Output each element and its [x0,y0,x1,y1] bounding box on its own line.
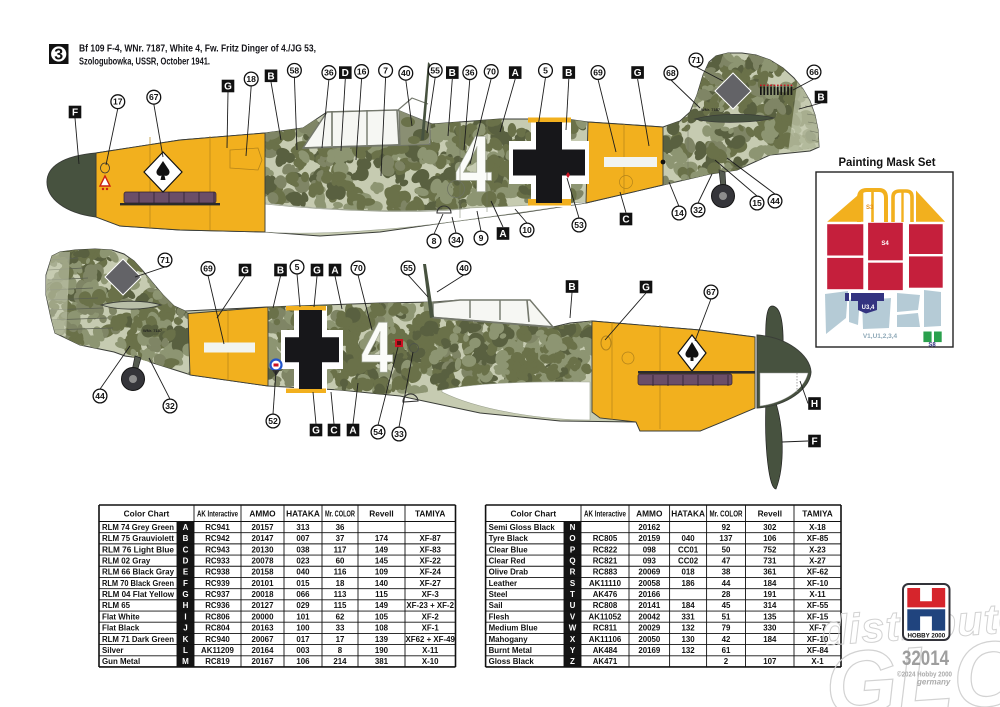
svg-text:3: 3 [54,47,63,64]
svg-text:54: 54 [373,427,383,437]
svg-text:40: 40 [459,263,469,273]
svg-text:RC938: RC938 [205,568,230,577]
svg-text:7: 7 [383,65,388,75]
svg-text:098: 098 [643,545,657,554]
svg-text:Gloss Black: Gloss Black [489,657,535,666]
svg-text:038: 038 [296,545,310,554]
svg-text:32014: 32014 [902,647,949,670]
svg-text:X: X [570,635,576,644]
svg-text:58: 58 [290,65,300,75]
svg-text:55: 55 [403,263,413,273]
svg-text:A: A [512,68,519,79]
svg-text:RLM 70 Black Green: RLM 70 Black Green [102,579,174,588]
svg-text:Steel: Steel [489,590,508,599]
svg-text:G: G [224,82,232,93]
svg-text:20141: 20141 [638,601,661,610]
svg-text:2: 2 [724,657,729,666]
svg-text:20147: 20147 [252,534,275,543]
svg-text:302: 302 [763,523,777,532]
svg-text:G: G [312,426,320,437]
svg-text:F: F [183,579,188,588]
svg-text:AMMO: AMMO [249,508,276,518]
svg-text:AK11110: AK11110 [589,579,622,588]
svg-text:B: B [565,68,572,79]
svg-text:F: F [72,108,78,119]
svg-text:20164: 20164 [252,646,275,655]
svg-text:17: 17 [336,635,345,644]
svg-text:M: M [182,657,189,666]
svg-text:106: 106 [763,534,777,543]
svg-text:R: R [570,568,576,577]
svg-text:V1,U1,2,3,4: V1,U1,2,3,4 [863,333,898,340]
svg-text:106: 106 [296,657,310,666]
svg-text:Tyre Black: Tyre Black [489,534,529,543]
svg-text:D: D [342,68,349,79]
svg-text:20078: 20078 [252,557,275,566]
svg-text:XF-10: XF-10 [807,579,829,588]
svg-text:14: 14 [674,208,684,218]
svg-text:113: 113 [334,590,347,599]
svg-text:X-18: X-18 [809,523,826,532]
svg-text:132: 132 [682,624,696,633]
svg-text:20042: 20042 [638,612,661,621]
svg-text:8: 8 [338,646,343,655]
svg-text:B: B [817,93,824,104]
svg-text:5: 5 [295,262,300,272]
svg-text:RC943: RC943 [205,545,230,554]
svg-text:X-10: X-10 [422,657,439,666]
svg-text:S8: S8 [928,343,936,349]
svg-text:RC942: RC942 [205,534,230,543]
svg-text:HATAKA: HATAKA [286,508,320,518]
svg-text:XF62 + XF-49: XF62 + XF-49 [406,635,456,644]
svg-text:AK11052: AK11052 [589,612,623,621]
svg-text:20157: 20157 [252,523,275,532]
svg-text:L: L [183,646,188,655]
svg-text:RC819: RC819 [205,657,230,666]
svg-text:K: K [183,635,189,644]
svg-text:A: A [499,229,506,240]
svg-text:69: 69 [203,264,213,274]
svg-text:Mr. COLOR: Mr. COLOR [325,508,355,518]
svg-text:AK471: AK471 [593,657,618,666]
svg-text:330: 330 [763,624,777,633]
svg-text:B: B [568,282,575,293]
svg-text:15: 15 [752,198,762,208]
svg-text:AK476: AK476 [593,590,618,599]
svg-text:214: 214 [333,657,347,666]
svg-text:XF-83: XF-83 [419,545,441,554]
svg-text:37: 37 [336,534,345,543]
svg-text:66: 66 [809,67,819,77]
svg-text:381: 381 [375,657,389,666]
svg-text:20127: 20127 [252,601,275,610]
svg-text:Bf 109 F-4, WNr. 7187, White 4: Bf 109 F-4, WNr. 7187, White 4, Fw. Frit… [79,44,316,55]
svg-text:O: O [569,534,575,543]
svg-text:F: F [811,437,817,448]
svg-text:115: 115 [334,601,347,610]
svg-text:093: 093 [643,557,657,566]
svg-text:003: 003 [296,646,310,655]
svg-text:44: 44 [722,579,731,588]
svg-text:RLM 66 Black Gray: RLM 66 Black Gray [102,568,175,577]
svg-text:314: 314 [763,601,777,610]
svg-text:53: 53 [574,220,584,230]
svg-text:10: 10 [522,225,532,235]
svg-text:52: 52 [268,416,278,426]
svg-text:XF-3: XF-3 [422,590,440,599]
svg-text:RC937: RC937 [205,590,230,599]
svg-text:TAMIYA: TAMIYA [802,508,832,518]
svg-text:RC804: RC804 [205,624,230,633]
svg-text:Medium Blue: Medium Blue [489,624,539,633]
svg-text:Revell: Revell [758,508,782,518]
svg-text:184: 184 [763,635,777,644]
svg-text:RC821: RC821 [593,557,618,566]
svg-text:36: 36 [336,523,345,532]
svg-text:67: 67 [149,92,159,102]
svg-text:135: 135 [763,612,777,621]
svg-text:B: B [183,534,189,543]
svg-text:XF-22: XF-22 [419,557,441,566]
svg-text:S3: S3 [866,205,874,211]
svg-text:20159: 20159 [638,534,661,543]
svg-text:Sail: Sail [489,601,503,610]
svg-text:HATAKA: HATAKA [671,508,705,518]
svg-text:RC940: RC940 [205,635,230,644]
svg-text:117: 117 [334,545,347,554]
svg-text:N: N [570,523,576,532]
svg-text:45: 45 [722,601,731,610]
svg-text:I: I [184,612,186,621]
svg-text:38: 38 [722,568,731,577]
svg-text:190: 190 [375,646,389,655]
svg-text:140: 140 [375,579,389,588]
svg-text:Color Chart: Color Chart [510,508,556,518]
svg-text:RLM 71 Dark Green: RLM 71 Dark Green [102,635,174,644]
svg-text:Olive Drab: Olive Drab [489,568,529,577]
svg-text:RC806: RC806 [205,612,230,621]
svg-text:RC811: RC811 [593,624,618,633]
svg-text:174: 174 [375,534,389,543]
svg-text:18: 18 [246,74,256,84]
svg-text:AK11106: AK11106 [589,635,622,644]
svg-text:RC933: RC933 [205,557,230,566]
svg-text:X-1: X-1 [811,657,824,666]
svg-text:U: U [570,601,576,610]
svg-text:4: 4 [361,307,393,388]
svg-text:20000: 20000 [252,612,275,621]
svg-text:186: 186 [682,579,696,588]
svg-text:20069: 20069 [638,568,661,577]
svg-text:Gun Metal: Gun Metal [102,657,140,666]
svg-text:145: 145 [375,557,389,566]
svg-text:WNr. 7187: WNr. 7187 [143,328,163,333]
svg-text:184: 184 [682,601,696,610]
svg-text:G: G [634,68,642,79]
svg-text:20050: 20050 [638,635,661,644]
svg-text:18: 18 [336,579,345,588]
svg-text:XF-62: XF-62 [807,568,829,577]
svg-text:B: B [277,266,284,277]
svg-text:130: 130 [682,635,696,644]
svg-text:XF-2: XF-2 [422,612,440,621]
svg-text:Flat White: Flat White [102,612,140,621]
svg-text:C: C [330,426,337,437]
svg-text:68: 68 [666,68,676,78]
svg-text:115: 115 [375,590,388,599]
svg-text:Mr. COLOR: Mr. COLOR [710,508,743,518]
svg-text:017: 017 [296,635,310,644]
svg-text:331: 331 [682,612,696,621]
svg-text:137: 137 [719,534,733,543]
svg-text:XF-87: XF-87 [419,534,441,543]
svg-text:79: 79 [722,624,731,633]
svg-text:029: 029 [296,601,310,610]
svg-text:100: 100 [296,624,310,633]
svg-text:Silver: Silver [102,646,124,655]
svg-text:WNr. 7187: WNr. 7187 [701,107,721,112]
svg-text:5: 5 [543,66,548,76]
svg-text:RLM 76 Light Blue: RLM 76 Light Blue [102,545,175,554]
svg-text:D: D [183,557,189,566]
svg-text:015: 015 [296,579,310,588]
svg-text:Semi Gloss Black: Semi Gloss Black [489,523,556,532]
svg-text:CC01: CC01 [678,545,699,554]
svg-text:Flat Black: Flat Black [102,624,140,633]
svg-text:105: 105 [375,612,389,621]
svg-text:E: E [183,568,189,577]
svg-text:752: 752 [763,545,777,554]
svg-text:20067: 20067 [252,635,275,644]
svg-text:34: 34 [451,235,461,245]
svg-text:G: G [642,283,650,294]
svg-text:44: 44 [95,391,105,401]
svg-text:32: 32 [693,205,703,215]
svg-text:62: 62 [336,612,345,621]
svg-text:H: H [811,399,818,410]
svg-text:G: G [182,590,188,599]
svg-text:70: 70 [353,263,363,273]
svg-text:16: 16 [357,67,367,77]
svg-text:X-11: X-11 [809,590,826,599]
svg-text:33: 33 [336,624,345,633]
svg-text:007: 007 [296,534,310,543]
svg-text:70: 70 [486,67,496,77]
svg-text:61: 61 [722,646,731,655]
svg-text:55: 55 [430,65,440,75]
svg-text:XF-85: XF-85 [807,534,829,543]
svg-text:RC883: RC883 [593,568,618,577]
svg-text:20029: 20029 [638,624,661,633]
svg-text:Flesh: Flesh [489,612,510,621]
svg-text:361: 361 [763,568,777,577]
svg-text:313: 313 [296,523,310,532]
svg-text:066: 066 [296,590,310,599]
svg-text:RLM 75 Grauviolett: RLM 75 Grauviolett [102,534,174,543]
svg-text:20169: 20169 [638,646,661,655]
svg-text:33: 33 [394,429,404,439]
svg-text:AK11209: AK11209 [201,646,235,655]
svg-text:139: 139 [375,635,389,644]
svg-text:184: 184 [763,579,777,588]
svg-text:AK Interactive: AK Interactive [584,508,626,518]
svg-text:AK Interactive: AK Interactive [197,508,238,518]
svg-text:116: 116 [334,568,347,577]
svg-text:RC808: RC808 [593,601,618,610]
svg-text:RC805: RC805 [593,534,618,543]
svg-text:109: 109 [375,568,389,577]
svg-text:W: W [569,624,577,633]
svg-text:G: G [241,266,249,277]
svg-text:C: C [622,215,629,226]
svg-text:191: 191 [763,590,777,599]
svg-text:P: P [570,545,576,554]
svg-text:20163: 20163 [252,624,275,633]
svg-text:20158: 20158 [252,568,275,577]
svg-text:101: 101 [296,612,310,621]
svg-text:AK484: AK484 [593,646,618,655]
svg-text:germany: germany [916,678,951,687]
svg-text:20018: 20018 [252,590,275,599]
svg-text:XF-1: XF-1 [422,624,440,633]
svg-text:B: B [449,68,456,79]
svg-text:RC936: RC936 [205,601,230,610]
svg-text:T: T [570,590,575,599]
svg-text:107: 107 [763,657,777,666]
svg-text:92: 92 [722,523,731,532]
svg-text:731: 731 [763,557,777,566]
svg-text:C: C [183,545,189,554]
svg-text:51: 51 [722,612,731,621]
svg-text:47: 47 [722,557,731,566]
svg-text:28: 28 [722,590,731,599]
svg-text:42: 42 [722,635,731,644]
svg-text:HOBBY 2000: HOBBY 2000 [907,633,945,640]
svg-text:Q: Q [569,557,575,566]
svg-text:RLM 04 Flat Yellow: RLM 04 Flat Yellow [102,590,175,599]
svg-text:023: 023 [296,557,310,566]
svg-text:RLM 02 Gray: RLM 02 Gray [102,557,151,566]
svg-text:RC822: RC822 [593,545,618,554]
svg-text:RC941: RC941 [205,523,230,532]
svg-text:V: V [570,612,576,621]
svg-text:Burnt Metal: Burnt Metal [489,646,532,655]
svg-text:36: 36 [465,68,475,78]
svg-text:RC939: RC939 [205,579,230,588]
svg-text:149: 149 [375,601,389,610]
svg-text:018: 018 [682,568,696,577]
svg-text:67: 67 [706,287,716,297]
svg-text:Mahogany: Mahogany [489,635,529,644]
svg-text:60: 60 [336,557,345,566]
svg-text:A: A [183,523,189,532]
svg-text:69: 69 [593,68,603,78]
svg-text:S4: S4 [881,241,889,247]
svg-text:X-23: X-23 [809,545,826,554]
svg-text:71: 71 [160,255,170,265]
svg-text:CC02: CC02 [678,557,699,566]
svg-text:RLM 74 Grey Green: RLM 74 Grey Green [102,523,174,532]
svg-text:Clear Blue: Clear Blue [489,545,529,554]
svg-text:40: 40 [401,68,411,78]
svg-text:Revell: Revell [369,508,393,518]
svg-text:XF-23 + XF-2: XF-23 + XF-2 [406,601,454,610]
svg-text:50: 50 [722,545,731,554]
svg-text:71: 71 [691,55,701,65]
svg-text:17: 17 [113,97,123,107]
svg-text:20130: 20130 [252,545,275,554]
svg-text:J: J [183,624,187,633]
svg-text:20162: 20162 [638,523,661,532]
svg-text:H: H [183,601,189,610]
svg-text:RLM 65: RLM 65 [102,601,131,610]
svg-text:8: 8 [432,236,437,246]
svg-text:132: 132 [682,646,696,655]
svg-text:32: 32 [165,401,175,411]
svg-text:44: 44 [770,196,780,206]
svg-text:TAMIYA: TAMIYA [415,508,445,518]
svg-text:Leather: Leather [489,579,518,588]
svg-text:U3,4: U3,4 [862,305,875,311]
svg-text:XF-24: XF-24 [419,568,441,577]
svg-text:9: 9 [479,233,484,243]
svg-text:149: 149 [375,545,389,554]
svg-text:108: 108 [375,624,389,633]
svg-text:36: 36 [324,68,334,78]
svg-text:S: S [570,579,576,588]
svg-text:20101: 20101 [252,579,275,588]
svg-text:040: 040 [296,568,310,577]
svg-text:Painting Mask Set: Painting Mask Set [839,155,936,169]
svg-text:XF-27: XF-27 [419,579,441,588]
svg-text:040: 040 [682,534,696,543]
svg-text:AMMO: AMMO [636,508,663,518]
svg-text:A: A [349,426,356,437]
svg-text:Z: Z [570,657,575,666]
svg-text:Szologubowka, USSR, October 19: Szologubowka, USSR, October 1941. [79,57,210,68]
svg-text:Color Chart: Color Chart [124,508,170,518]
svg-text:A: A [331,266,338,277]
svg-text:X-27: X-27 [809,557,826,566]
svg-text:20058: 20058 [638,579,661,588]
svg-text:20167: 20167 [252,657,275,666]
svg-text:B: B [267,71,274,82]
svg-text:20166: 20166 [638,590,661,599]
svg-text:Clear Red: Clear Red [489,557,526,566]
svg-text:Y: Y [570,646,576,655]
svg-text:X-11: X-11 [422,646,439,655]
svg-text:G: G [313,266,321,277]
